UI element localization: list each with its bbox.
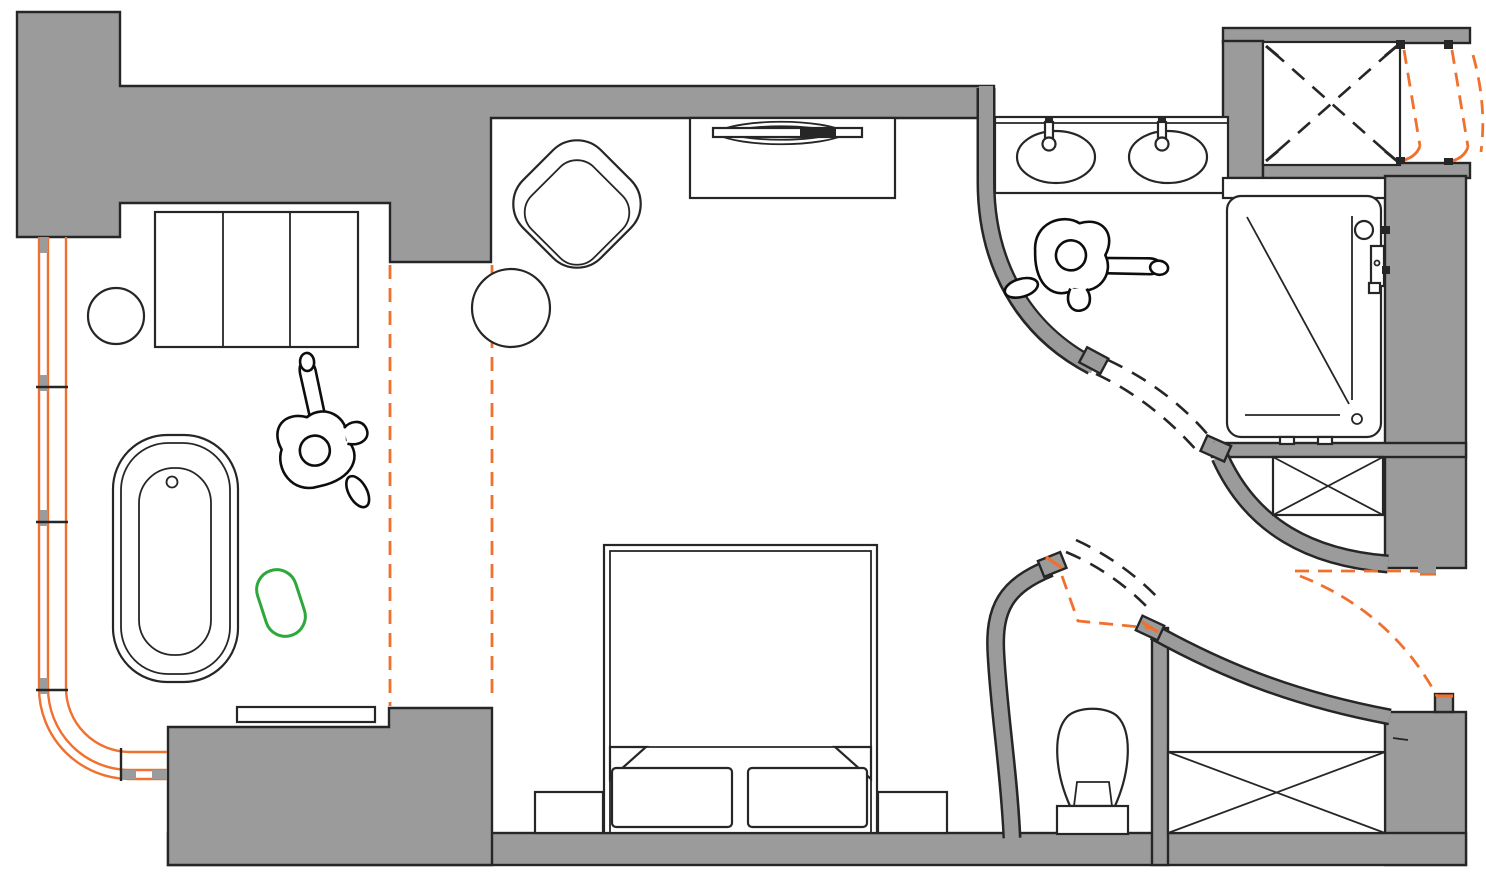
wall-under-shower [1212,443,1466,457]
glazing-mullion [120,770,136,779]
wall-endcap-wc-door [1038,552,1067,577]
door-swing-wc-2 [1076,540,1162,602]
nightstand-left [535,792,603,833]
pouf-outline [251,564,310,641]
pillow-left [612,768,732,827]
door-leaf-tr-1 [1404,50,1420,146]
media-console [690,118,895,198]
shower-foot [1318,437,1332,444]
faucet-left [1043,118,1056,151]
lounge-armchair [499,126,655,282]
wall-right-column [1385,176,1466,568]
person-figure-bedroom [270,348,374,517]
closet-sloped-wall [1154,632,1390,717]
wall-bottom-left-block [168,708,492,865]
door-swing-vanity-2 [1096,374,1198,452]
shower [1223,178,1390,444]
door-swing-vanity [1108,360,1214,442]
shaft-void [1263,42,1400,165]
pillow-right [748,768,867,827]
floor-plan-canvas [0,0,1486,878]
wall-closet-left [1152,628,1168,865]
nightstand-right [878,792,947,833]
door-leaf-tr-2 [1452,50,1468,147]
crossed-cabinet-small [1273,457,1383,515]
freestanding-bathtub [113,435,238,682]
round-stool [88,288,144,344]
wc-curved-wall [996,568,1050,840]
green-pouf [251,564,310,641]
toilet-bowl [1057,709,1128,806]
round-side-table [472,269,550,347]
glazing-mullion [152,770,167,779]
sink-right [1129,131,1207,183]
wardrobe-body [155,212,358,347]
sink-left [1017,131,1095,183]
floor-plan-svg [0,0,1486,878]
crossed-closet-large [1168,752,1385,833]
vanity [995,117,1228,193]
door-swing-tr-offcanvas [1473,55,1483,152]
door-swing-right [1300,576,1438,698]
faucet-right [1156,118,1169,151]
glazing-mullion [40,375,48,391]
sliding-partition-dashes [390,265,492,706]
glazing-mullion [40,678,48,694]
wardrobe-3-door [155,212,358,347]
glazing-mullion [40,237,48,253]
wall-endcap-shower-corner [1200,435,1231,461]
door-leaf-wc [1062,576,1150,628]
bathtub-outer [113,435,238,682]
toilet-tank [1057,806,1128,834]
double-bed [604,545,877,833]
shower-foot [1280,437,1294,444]
door-swing-wc [1066,552,1152,612]
glazing-mullion [40,510,48,526]
toilet [1057,709,1128,834]
low-bench [237,707,375,722]
